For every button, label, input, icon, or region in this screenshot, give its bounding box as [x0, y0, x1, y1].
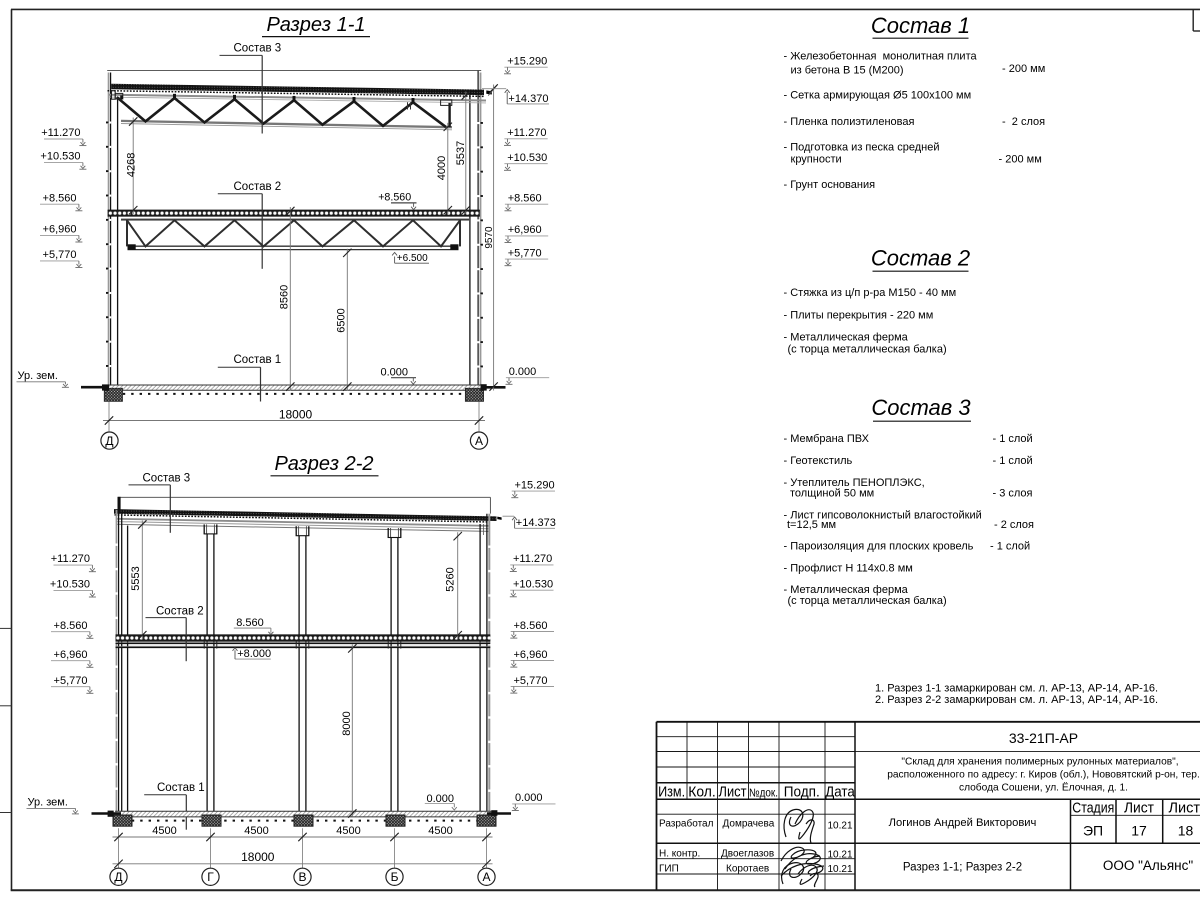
svg-text:Кол.: Кол. [688, 783, 716, 800]
svg-text:ЭП: ЭП [1083, 822, 1103, 838]
svg-text:Состав 3: Состав 3 [143, 472, 191, 484]
svg-text:+14.373: +14.373 [516, 517, 556, 529]
svg-text:Дата: Дата [825, 783, 855, 800]
svg-text:В: В [298, 870, 306, 884]
svg-text:0.000: 0.000 [427, 793, 455, 805]
svg-text:- Мембрана ПВХ: - Мембрана ПВХ [784, 433, 870, 445]
svg-text:17: 17 [1131, 822, 1147, 838]
svg-text:+6,960: +6,960 [54, 649, 88, 661]
svg-text:+8.560: +8.560 [508, 193, 542, 205]
svg-text:10.21: 10.21 [827, 864, 852, 875]
svg-text:- 3 слоя: - 3 слоя [993, 488, 1033, 500]
svg-text:18000: 18000 [279, 407, 313, 421]
svg-text:18: 18 [1178, 822, 1194, 838]
svg-text:Состав 3: Состав 3 [871, 395, 971, 420]
svg-text:+15.290: +15.290 [515, 479, 555, 491]
svg-text:ГИП: ГИП [659, 863, 679, 874]
svg-text:0.000: 0.000 [509, 366, 537, 378]
svg-text:Ур. зем.: Ур. зем. [28, 797, 68, 809]
svg-text:9570: 9570 [484, 226, 495, 249]
svg-text:+5,770: +5,770 [508, 247, 542, 259]
svg-text:+11.270: +11.270 [513, 553, 552, 565]
svg-text:А: А [475, 434, 483, 448]
svg-text:+5,770: +5,770 [514, 675, 548, 687]
svg-text:- Стяжка из ц/п р-ра М150 - 40: - Стяжка из ц/п р-ра М150 - 40 мм [784, 287, 957, 299]
svg-text:слобода Сошени, ул. Ёлочная, д: слобода Сошени, ул. Ёлочная, д. 1. [959, 782, 1128, 794]
svg-text:- Профлист Н 114х0.8 мм: - Профлист Н 114х0.8 мм [784, 563, 913, 575]
svg-text:+6,960: +6,960 [514, 649, 548, 661]
svg-text:5260: 5260 [444, 567, 456, 591]
svg-text:1. Разрез 1-1 замаркирован см.: 1. Разрез 1-1 замаркирован см. л. АР-13,… [875, 683, 1158, 695]
svg-text:- Пленка полиэтиленовая: - Пленка полиэтиленовая [784, 116, 915, 128]
svg-text:ООО "Альянс": ООО "Альянс" [1103, 858, 1193, 873]
svg-text:- 2 слоя: - 2 слоя [1002, 116, 1045, 128]
svg-text:+14.370: +14.370 [508, 93, 548, 105]
svg-text:+11.270: +11.270 [51, 553, 90, 565]
svg-text:Н. контр.: Н. контр. [659, 848, 700, 859]
svg-text:Разработал: Разработал [659, 817, 714, 829]
svg-text:Г: Г [207, 870, 214, 884]
svg-text:Стадия: Стадия [1072, 801, 1114, 817]
svg-text:+10.530: +10.530 [507, 152, 547, 164]
svg-text:+11.270: +11.270 [41, 127, 80, 139]
svg-text:- Металлическая ферма: - Металлическая ферма [784, 332, 909, 344]
svg-text:- Грунт основания: - Грунт основания [784, 179, 876, 191]
svg-text:Лист: Лист [719, 783, 747, 800]
svg-text:+8.560: +8.560 [54, 620, 88, 632]
svg-text:- 200 мм: - 200 мм [1002, 63, 1045, 75]
svg-text:+8.000: +8.000 [237, 648, 271, 660]
svg-text:- Пароизоляция для плоских кро: - Пароизоляция для плоских кровель [784, 541, 974, 553]
svg-text:10.21: 10.21 [827, 820, 852, 831]
svg-text:из бетона В 15 (М200): из бетона В 15 (М200) [791, 65, 904, 77]
svg-text:2. Разрез 2-2 замаркирован см.: 2. Разрез 2-2 замаркирован см. л. АР-13,… [875, 694, 1158, 706]
svg-text:крупности: крупности [791, 154, 842, 166]
svg-text:33-21П-АР: 33-21П-АР [1009, 730, 1078, 746]
svg-text:5553: 5553 [130, 566, 142, 590]
svg-text:+8.560: +8.560 [378, 192, 411, 204]
svg-text:(с торца металлическая балка): (с торца металлическая балка) [788, 595, 947, 607]
svg-text:18000: 18000 [241, 850, 275, 864]
svg-text:Д: Д [114, 870, 122, 884]
svg-text:- Геотекстиль: - Геотекстиль [784, 455, 853, 467]
svg-text:8.560: 8.560 [236, 617, 264, 629]
svg-text:Листов: Листов [1169, 801, 1200, 817]
svg-text:+8.560: +8.560 [514, 620, 548, 632]
svg-text:+10.530: +10.530 [50, 579, 90, 591]
svg-text:8560: 8560 [279, 285, 291, 309]
svg-text:Состав 1: Состав 1 [157, 782, 205, 794]
svg-text:4500: 4500 [336, 825, 360, 837]
svg-text:- Сетка армирующая Ø5 100х100: - Сетка армирующая Ø5 100х100 мм [784, 90, 972, 102]
svg-text:+6,960: +6,960 [43, 224, 77, 236]
svg-text:Ур. зем.: Ур. зем. [18, 370, 58, 382]
svg-text:Состав 2: Состав 2 [871, 246, 970, 271]
svg-text:6500: 6500 [336, 308, 348, 332]
svg-text:А: А [482, 870, 490, 884]
svg-text:10.21: 10.21 [827, 849, 852, 860]
svg-text:+5,770: +5,770 [43, 249, 77, 261]
svg-text:0.000: 0.000 [381, 366, 409, 378]
svg-text:+11.270: +11.270 [507, 127, 546, 139]
svg-text:- 1 слой: - 1 слой [990, 541, 1030, 553]
svg-text:"Склад для хранения полимерных: "Склад для хранения полимерных рулонных … [901, 756, 1178, 767]
svg-text:Лист: Лист [1124, 801, 1154, 817]
svg-text:№док.: №док. [749, 787, 778, 799]
svg-text:- Железобетонная монолитная п: - Железобетонная монолитная плита [784, 50, 978, 62]
svg-text:t=12,5 мм: t=12,5 мм [787, 519, 836, 531]
svg-text:Изм.: Изм. [658, 783, 685, 800]
svg-text:- Подготовка из песка средней: - Подготовка из песка средней [784, 142, 940, 154]
svg-text:- 1 слой: - 1 слой [993, 433, 1033, 445]
svg-text:- 1 слой: - 1 слой [993, 455, 1033, 467]
svg-text:- Плиты перекрытия - 220 мм: - Плиты перекрытия - 220 мм [784, 310, 934, 322]
svg-text:+10.530: +10.530 [40, 151, 80, 163]
svg-text:Состав 1: Состав 1 [234, 354, 282, 366]
svg-text:Двоеглазов: Двоеглазов [721, 848, 774, 859]
svg-text:4000: 4000 [436, 156, 448, 180]
svg-text:расположенного по адресу: г. К: расположенного по адресу: г. Киров (обл.… [887, 768, 1200, 780]
svg-text:(с торца металлическая балка): (с торца металлическая балка) [788, 344, 947, 356]
svg-text:Домрачева: Домрачева [723, 818, 775, 829]
svg-text:+10.530: +10.530 [513, 579, 553, 591]
svg-text:+6.500: +6.500 [397, 253, 428, 264]
svg-text:+15.290: +15.290 [507, 56, 547, 68]
svg-text:4500: 4500 [428, 825, 452, 837]
svg-text:Разрез 1-1: Разрез 1-1 [266, 14, 365, 36]
svg-text:Коротаев: Коротаев [726, 863, 769, 874]
svg-text:+8.560: +8.560 [43, 192, 77, 204]
svg-text:+6,960: +6,960 [508, 224, 542, 236]
svg-text:Б: Б [391, 870, 399, 884]
svg-text:Д: Д [105, 434, 113, 448]
svg-text:5537: 5537 [455, 141, 467, 165]
svg-text:Состав 1: Состав 1 [871, 13, 970, 38]
svg-text:+5,770: +5,770 [54, 675, 88, 687]
svg-text:Подп.: Подп. [784, 783, 820, 800]
svg-text:Разрез 2-2: Разрез 2-2 [274, 453, 373, 475]
svg-text:0.000: 0.000 [515, 792, 543, 804]
svg-text:- 2 слоя: - 2 слоя [994, 519, 1034, 531]
svg-text:Состав 3: Состав 3 [234, 43, 282, 55]
svg-text:толщиной 50 мм: толщиной 50 мм [790, 488, 874, 500]
svg-text:- 200 мм: - 200 мм [999, 154, 1042, 166]
svg-text:Состав 2: Состав 2 [156, 605, 204, 617]
svg-text:4500: 4500 [244, 825, 268, 837]
svg-text:Разрез 1-1; Разрез 2-2: Разрез 1-1; Разрез 2-2 [903, 861, 1022, 873]
svg-text:8000: 8000 [341, 711, 353, 735]
svg-text:4500: 4500 [152, 825, 176, 837]
svg-text:Логинов Андрей Викторович: Логинов Андрей Викторович [889, 817, 1037, 829]
svg-text:4268: 4268 [125, 153, 137, 177]
svg-text:Состав 2: Состав 2 [234, 181, 282, 193]
